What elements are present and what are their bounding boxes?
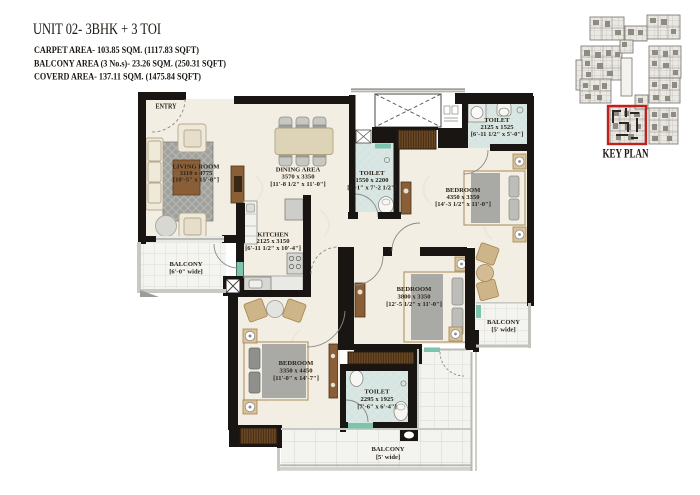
svg-text:TOILET: TOILET [484,117,510,124]
svg-text:3350 x 4450: 3350 x 4450 [280,368,314,375]
svg-text:3800 x 3350: 3800 x 3350 [398,294,432,301]
svg-text:BEDROOM: BEDROOM [279,360,315,367]
svg-text:BALCONY: BALCONY [487,319,520,326]
svg-text:COVERD AREA- 137.11 SQM. (1475: COVERD AREA- 137.11 SQM. (1475.84 SQFT) [34,72,201,83]
svg-text:[5' wide]: [5' wide] [491,327,515,334]
svg-text:UNIT 02- 3BHK + 3 TOI: UNIT 02- 3BHK + 3 TOI [33,21,161,38]
svg-text:[14'-3 1/2" x 11'-0"]: [14'-3 1/2" x 11'-0"] [435,201,491,208]
svg-text:[6'-0" wide]: [6'-0" wide] [169,269,203,276]
svg-text:TOILET: TOILET [359,170,385,177]
svg-text:[5'-1" x 7'-2 1/2"]: [5'-1" x 7'-2 1/2"] [347,185,397,192]
svg-text:BALCONY: BALCONY [372,446,405,453]
svg-text:2125 x 1525: 2125 x 1525 [481,124,515,131]
svg-text:[10'-5" x 15'-8"]: [10'-5" x 15'-8"] [173,177,219,184]
svg-text:[5' wide]: [5' wide] [376,454,400,461]
svg-text:TOILET: TOILET [364,389,390,396]
svg-text:[7'-6" x 6'-4"]: [7'-6" x 6'-4"] [357,404,397,411]
svg-text:KEY PLAN: KEY PLAN [603,147,649,161]
svg-text:[6'-11 1/2" x 5'-0"]: [6'-11 1/2" x 5'-0"] [471,131,524,138]
svg-text:3570 x 3350: 3570 x 3350 [282,174,316,181]
svg-text:[12'-5 1/2" x 11'-0"]: [12'-5 1/2" x 11'-0"] [386,301,442,308]
svg-text:2295 x 1925: 2295 x 1925 [361,396,395,403]
svg-text:BEDROOM: BEDROOM [397,286,433,293]
svg-text:[6'-11 1/2" x 10'-4"]: [6'-11 1/2" x 10'-4"] [245,245,301,252]
svg-text:1550 x 2200: 1550 x 2200 [356,177,390,184]
svg-text:CARPET AREA- 103.85 SQM. (1117: CARPET AREA- 103.85 SQM. (1117.83 SQFT) [34,45,199,56]
svg-text:[11'-8 1/2" x 11'-0"]: [11'-8 1/2" x 11'-0"] [270,181,326,188]
svg-text:ENTRY: ENTRY [156,104,177,111]
svg-text:BALCONY: BALCONY [170,261,203,268]
svg-text:[11'-0" x 14'-7"]: [11'-0" x 14'-7"] [273,375,319,382]
svg-text:DINING AREA: DINING AREA [276,166,321,173]
svg-text:BALCONY AREA (3 No.s)- 23.26 S: BALCONY AREA (3 No.s)- 23.26 SQM. (250.3… [34,58,226,69]
svg-text:BEDROOM: BEDROOM [446,187,482,194]
